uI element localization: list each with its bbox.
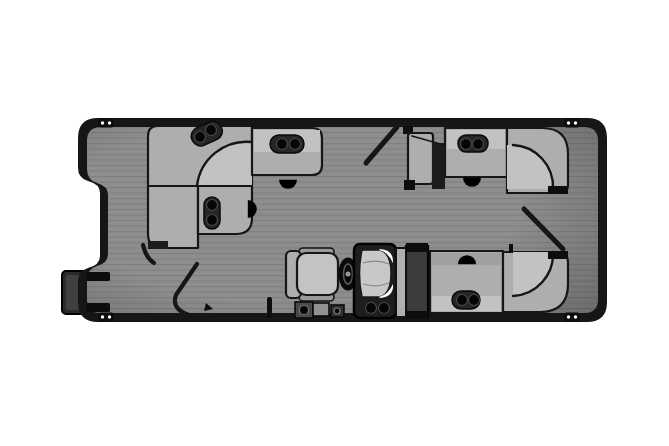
fence-tick bbox=[509, 244, 513, 252]
cupholder-icon bbox=[469, 295, 480, 306]
cupholder-icon bbox=[206, 125, 217, 136]
latch-icon bbox=[300, 306, 309, 315]
bow-side-bench-end bbox=[148, 241, 168, 249]
cleat-icon bbox=[98, 313, 114, 322]
cupholder-icon bbox=[379, 303, 390, 314]
storage-box bbox=[313, 303, 329, 316]
fence-post bbox=[404, 180, 415, 190]
midship-armrest bbox=[432, 143, 445, 189]
cleat-icon bbox=[98, 119, 114, 128]
captain-chair-seat bbox=[297, 253, 338, 295]
cupholder-icon bbox=[461, 139, 472, 150]
fence-post bbox=[267, 297, 272, 318]
seat-end-cap bbox=[548, 251, 568, 259]
boat-floorplan bbox=[0, 0, 669, 446]
steering-wheel-hub bbox=[346, 272, 351, 277]
platform-gate-post bbox=[86, 272, 110, 281]
aft-divider-cabinet bbox=[406, 246, 428, 318]
cleat-icon bbox=[564, 119, 580, 128]
cupholder-icon bbox=[207, 215, 218, 226]
aft-divider-cap bbox=[406, 243, 428, 252]
cupholder-icon bbox=[457, 295, 468, 306]
bow-side-bench bbox=[148, 186, 198, 248]
cupholder-icon bbox=[277, 139, 288, 150]
boat-floorplan-page bbox=[0, 0, 669, 446]
latch-icon bbox=[334, 308, 340, 314]
console-side-panel bbox=[396, 248, 406, 317]
cupholder-icon bbox=[366, 303, 377, 314]
cupholder-icon bbox=[207, 200, 218, 211]
aft-lounge bbox=[406, 243, 568, 319]
cupholder-icon bbox=[195, 132, 206, 143]
windshield bbox=[360, 250, 392, 297]
platform-gate-post bbox=[86, 303, 110, 312]
cupholder-icon bbox=[473, 139, 484, 150]
cupholder-icon bbox=[290, 139, 301, 150]
seat-end-cap bbox=[548, 186, 568, 194]
aft-divider-cap bbox=[406, 311, 428, 319]
cleat-icon bbox=[564, 313, 580, 322]
